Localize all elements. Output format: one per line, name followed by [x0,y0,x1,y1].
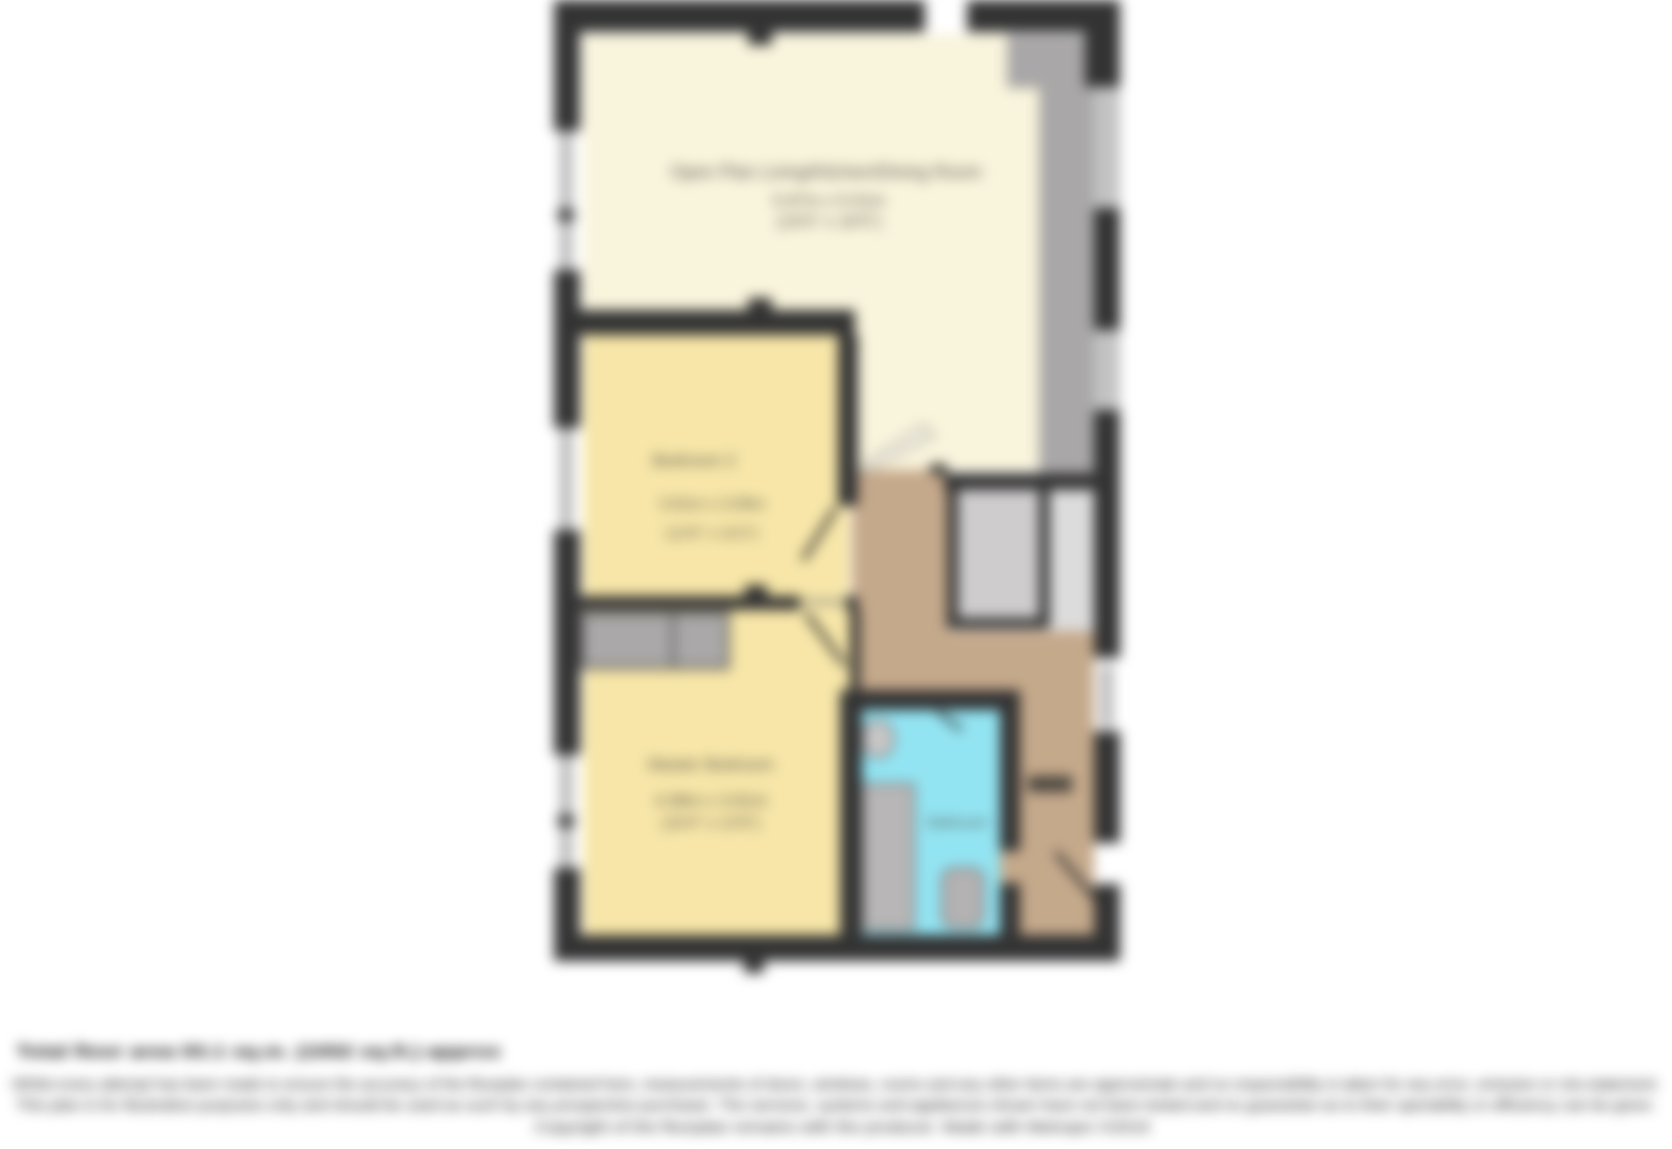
svg-text:This plan is for illustrative: This plan is for illustrative purposes o… [16,1097,1656,1114]
svg-text:Open Plan Living/Kitchen/Dinin: Open Plan Living/Kitchen/Dining Room [670,162,981,182]
svg-text:Bathroom: Bathroom [928,814,989,830]
svg-text:3.81m x 3.09m: 3.81m x 3.09m [659,496,765,513]
svg-text:4.98m x 3.81m: 4.98m x 3.81m [655,791,767,810]
svg-text:Copyright of the floorplan rem: Copyright of the floorplan remains with … [535,1119,1150,1136]
svg-text:Total floor area 93.1 sq.m. (1: Total floor area 93.1 sq.m. (1002 sq.ft.… [16,1042,502,1061]
svg-text:(19'3" x 16'5"): (19'3" x 16'5") [777,212,882,231]
svg-text:Bedroom 2: Bedroom 2 [652,451,735,470]
svg-text:(16'4" x 12'6"): (16'4" x 12'6") [662,815,760,832]
svg-text:Master Bedroom: Master Bedroom [648,755,774,774]
svg-text:(12'6" x 10'2"): (12'6" x 10'2") [666,525,758,542]
svg-text:5.87m x 5.01m: 5.87m x 5.01m [773,191,885,210]
svg-text:Whilst every attempt has been: Whilst every attempt has been made to en… [12,1076,1660,1093]
